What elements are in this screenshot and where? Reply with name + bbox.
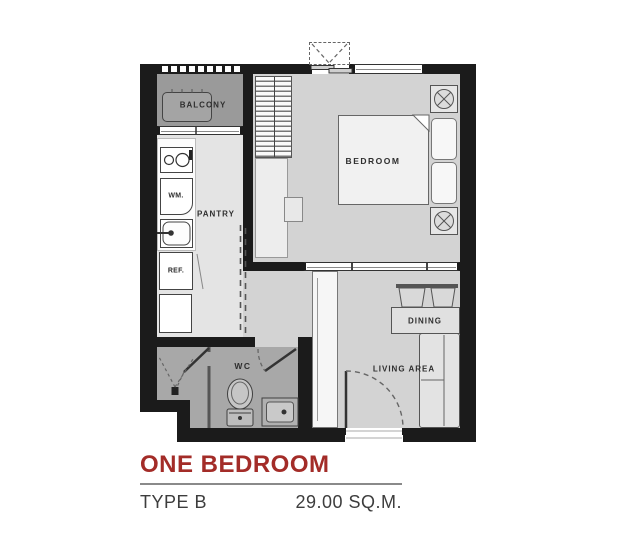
bedroom-label: BEDROOM — [346, 156, 401, 166]
stove-burners-icon — [165, 150, 193, 167]
wc-inner-door — [176, 348, 209, 389]
plan-title: ONE BEDROOM — [140, 451, 330, 479]
kitchen-sliding-door-dashed — [241, 225, 246, 335]
wc-label: WC — [234, 361, 251, 371]
shower-swing-doors — [159, 357, 193, 395]
dining-stool — [396, 286, 428, 307]
ac-unit-ticks — [172, 89, 202, 93]
unit-type-label: TYPE B — [140, 492, 207, 513]
legend-row: TYPE B 29.00 SQ.M. — [140, 492, 402, 513]
pantry-label: PANTRY — [197, 210, 235, 219]
ac-fan-lines — [312, 44, 347, 63]
sofa-cushion-lines — [421, 335, 444, 426]
balcony-label: BALCONY — [180, 101, 227, 110]
living-area-label: LIVING AREA — [373, 365, 435, 374]
refrigerator-label: REF. — [168, 268, 184, 275]
entrance-door — [341, 371, 407, 438]
legend-divider — [140, 483, 402, 485]
lamp-icon — [435, 90, 454, 109]
vanity-sink-icon — [262, 398, 298, 426]
glass-partition-mullions — [351, 263, 428, 270]
lamp-icon — [435, 212, 454, 231]
fridge-door-line — [197, 254, 203, 289]
floorplan-page: BALCONY PANTRY WM. REF. BEDROOM WC DININ… — [0, 0, 642, 557]
sink-basin-icon — [157, 222, 190, 245]
unit-area-label: 29.00 SQ.M. — [295, 492, 402, 513]
dining-label: DINING — [408, 317, 442, 326]
sliding-door-panels — [311, 66, 352, 74]
dining-stool — [428, 286, 458, 307]
washing-machine-label: WM. — [168, 193, 183, 200]
wc-door — [258, 349, 296, 371]
bed-fold — [413, 115, 429, 131]
toilet-icon — [227, 379, 253, 426]
